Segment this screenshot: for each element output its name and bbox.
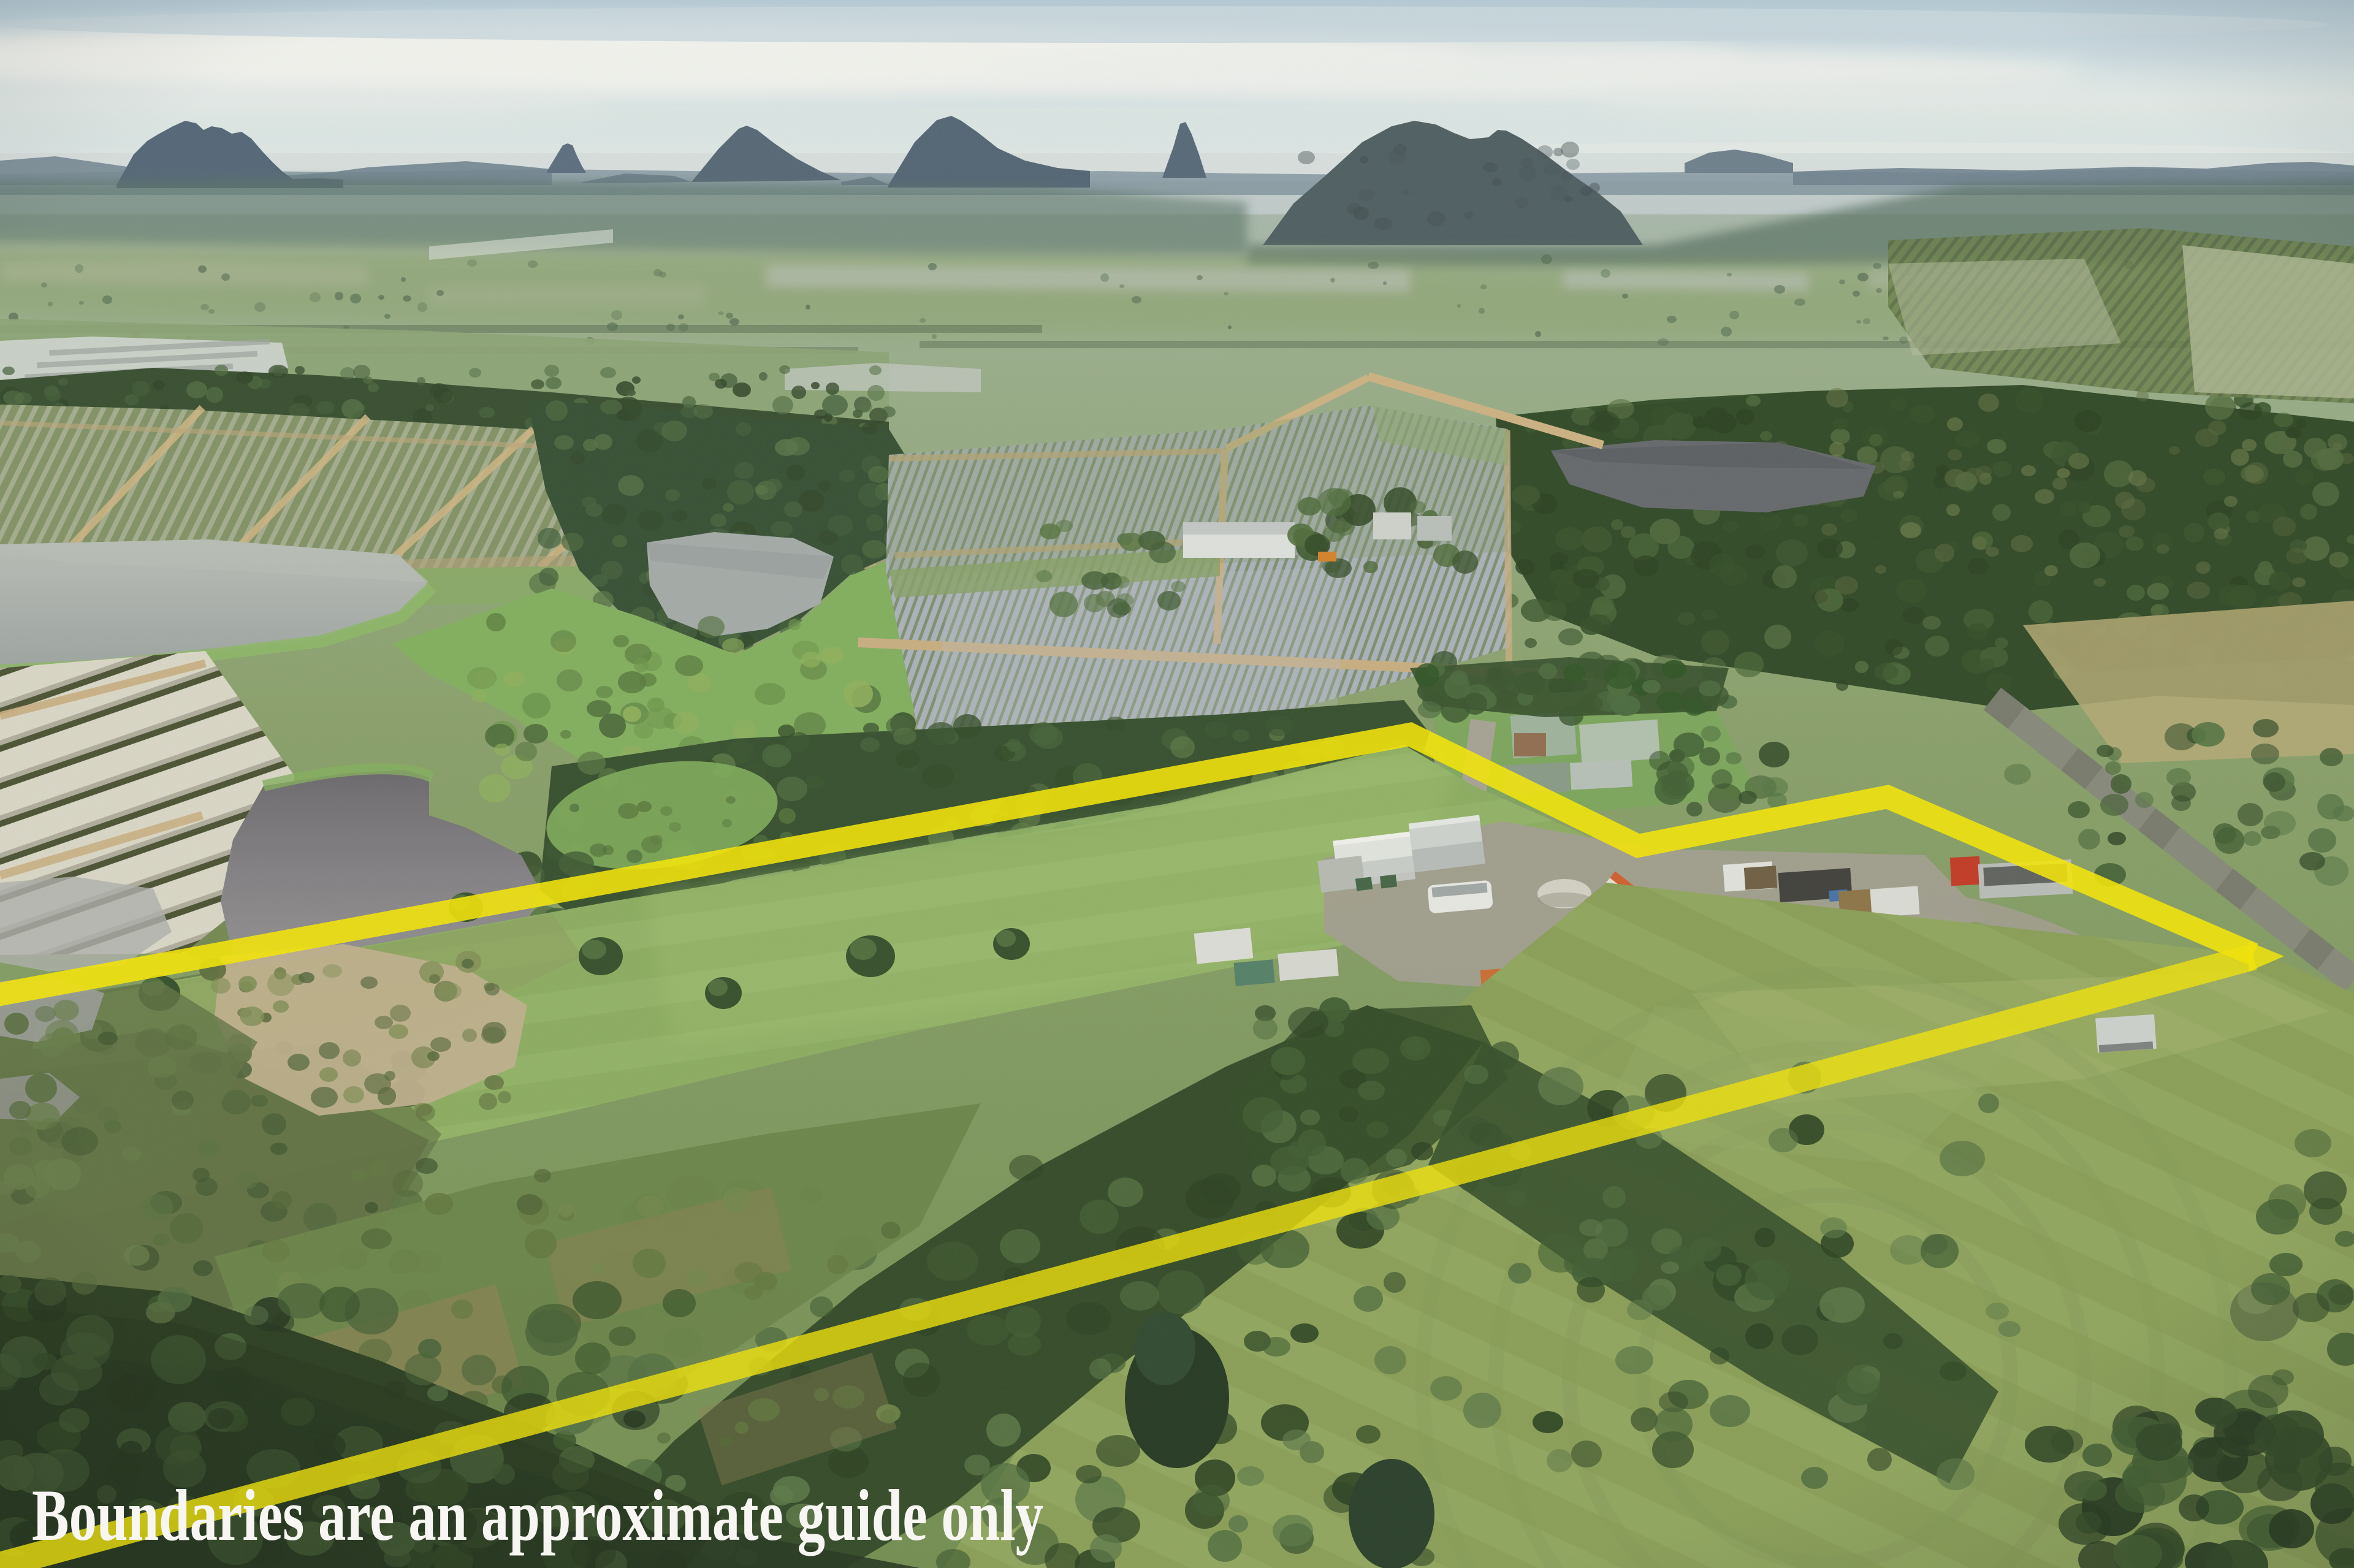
- svg-text:Boundaries are an approximate: Boundaries are an approximate guide only: [32, 1474, 1043, 1556]
